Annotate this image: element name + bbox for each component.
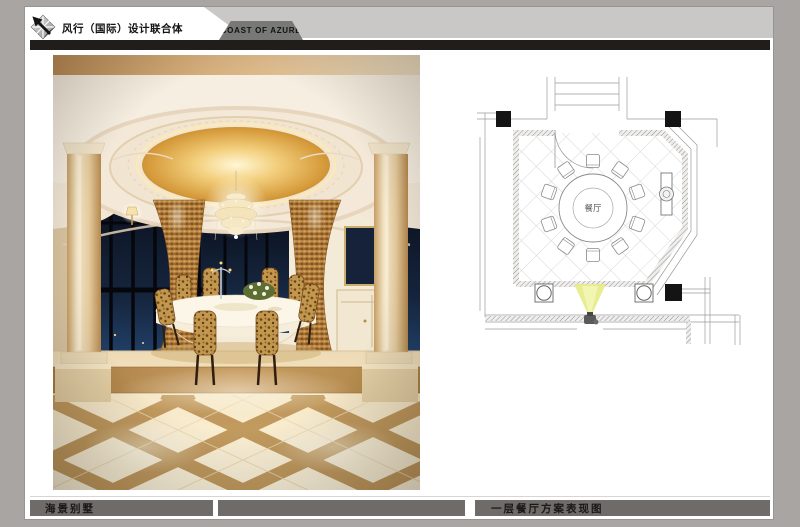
photo-vignette: [53, 55, 420, 490]
corridor-wall-return: [686, 322, 691, 344]
company-name: 风行（国际）设计联合体: [62, 21, 183, 36]
plan-sideboard: [660, 173, 674, 215]
project-name: 海景别墅: [45, 501, 95, 516]
brand-band: COAST OF AZURE: [219, 21, 303, 40]
header-rule: [30, 40, 770, 50]
company-logo-icon: [30, 14, 56, 40]
dining-room-photo: [53, 55, 420, 490]
project-name-bar: 海景别墅: [30, 500, 213, 516]
floor-plan: 餐厅: [477, 77, 757, 345]
presentation-sheet: 风行（国际）设计联合体 COAST OF AZURE: [25, 7, 773, 519]
drawing-title: 一层餐厅方案表现图: [491, 501, 604, 516]
room-label: 餐厅: [584, 203, 602, 213]
footer-middle-bar: [218, 500, 465, 516]
page-background: { "header": { "company_name": "风行（国际）设计联…: [0, 0, 800, 527]
plan-dining-table: 餐厅: [559, 174, 627, 242]
drawing-title-bar: 一层餐厅方案表现图: [475, 500, 770, 516]
content-divider: [30, 496, 770, 497]
brand-name: COAST OF AZURE: [221, 26, 302, 35]
